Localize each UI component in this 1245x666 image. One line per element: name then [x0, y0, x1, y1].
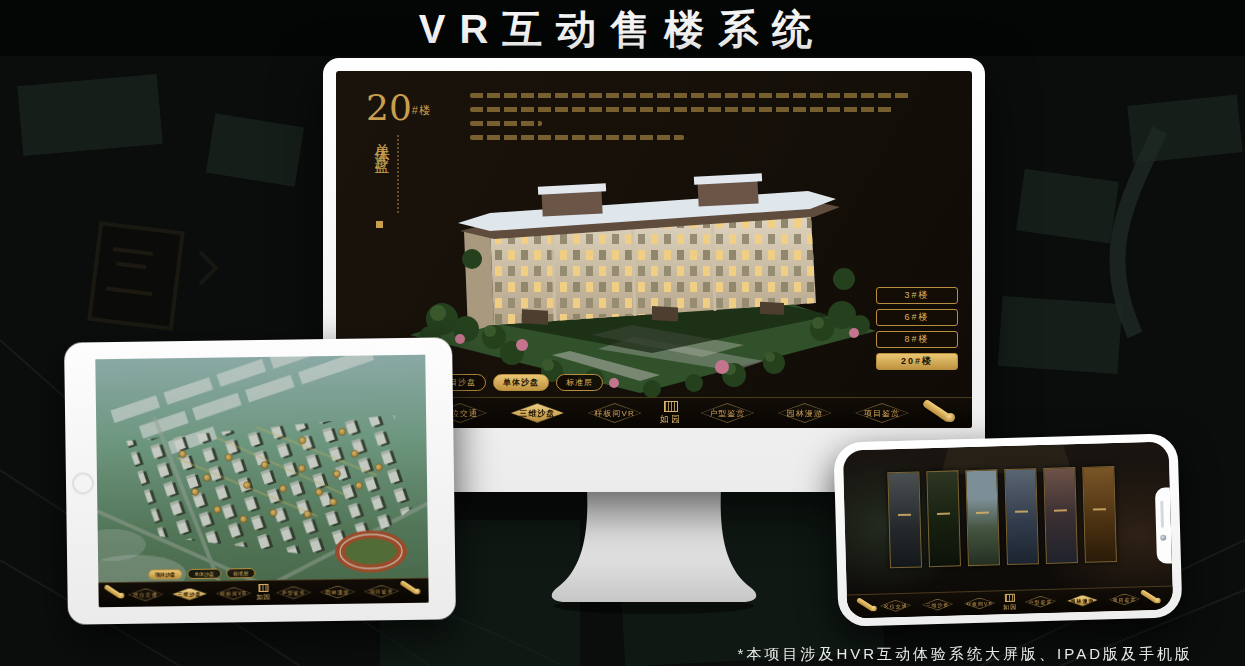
scroll-icon[interactable] [922, 396, 960, 424]
gallery-panel-display-shelf[interactable] [1082, 466, 1117, 563]
building-render [402, 135, 886, 403]
tablet-nav-bar: 区位交通 三维沙盘 样板间VR 如园 户型鉴赏 园林漫游 项目鉴赏 [98, 578, 428, 608]
building-button-20[interactable]: 20#楼 [876, 353, 958, 370]
building-button-3[interactable]: 3#楼 [876, 287, 958, 304]
brand-logo: 如园 [1003, 593, 1017, 611]
scroll-icon[interactable] [400, 578, 424, 596]
tablet-nav-location-traffic[interactable]: 区位交通 [124, 588, 166, 602]
nav-item-project-gallery[interactable]: 项目鉴赏 [850, 403, 914, 423]
phone-nav-unit-gallery[interactable]: 户型鉴赏 [1022, 595, 1059, 608]
page-title: VR互动售楼系统 [0, 2, 1245, 57]
gallery-panel-courtyard[interactable] [926, 470, 961, 567]
vertical-ornament [397, 135, 399, 213]
phone-gallery [887, 466, 1117, 568]
tablet-tab-project-sandbox[interactable]: 项目沙盘 [148, 569, 182, 579]
gallery-panel-interior-hall[interactable] [887, 471, 922, 568]
phone-nav-location-traffic[interactable]: 区位交通 [877, 599, 914, 612]
tablet-nav-project-gallery[interactable]: 项目鉴赏 [360, 585, 402, 599]
scroll-icon[interactable] [1140, 587, 1164, 605]
tablet-nav-3d-sandbox[interactable]: 三维沙盘 [168, 587, 210, 601]
nav-item-garden-roam[interactable]: 园林漫游 [773, 403, 837, 423]
tablet-tab-standard-floor[interactable]: 标准层 [226, 568, 255, 578]
poster: VR互动售楼系统 20#楼 单体沙盘 [0, 0, 1245, 666]
logo-seal-icon [1005, 593, 1015, 601]
tablet-nav-garden-roam[interactable]: 园林漫游 [316, 585, 358, 599]
tablet-screen: 项目沙盘 单体沙盘 标准层 区位交通 三维沙盘 样板间VR 如园 户型鉴赏 园林… [95, 355, 428, 608]
building-selector: 3#楼 6#楼 8#楼 20#楼 [876, 287, 958, 370]
tab-standard-floor[interactable]: 标准层 [556, 374, 603, 391]
gallery-panel-building-exterior[interactable] [1004, 468, 1039, 565]
floor-subtitle: 单体沙盘 [372, 131, 391, 151]
logo-seal-icon [664, 401, 678, 412]
camera-icon [1160, 535, 1166, 541]
tablet-nav-showroom-vr[interactable]: 样板间VR [212, 587, 254, 601]
phone-nav-garden-roam[interactable]: 园林漫游 [1064, 594, 1101, 607]
sub-tabs: 项目沙盘 单体沙盘 标准层 [430, 374, 603, 391]
phone-screen: 区位交通 三维沙盘 样板间VR 如园 户型鉴赏 园林漫游 项目鉴赏 [843, 441, 1174, 618]
speaker-icon [1160, 501, 1164, 528]
aerial-masterplan [95, 355, 428, 608]
phone-device: 区位交通 三维沙盘 样板间VR 如园 户型鉴赏 园林漫游 项目鉴赏 [833, 433, 1182, 627]
phone-nav-project-gallery[interactable]: 项目鉴赏 [1106, 593, 1143, 606]
monitor-stand [540, 489, 768, 617]
seal-icon [374, 219, 385, 230]
tablet-nav-unit-gallery[interactable]: 户型鉴赏 [272, 586, 314, 600]
phone-nav-3d-sandbox[interactable]: 三维沙盘 [919, 598, 956, 611]
brand-logo: 如园 [660, 401, 682, 426]
tablet-device: 项目沙盘 单体沙盘 标准层 区位交通 三维沙盘 样板间VR 如园 户型鉴赏 园林… [64, 337, 456, 624]
gallery-panel-landscape[interactable] [965, 469, 1000, 566]
footnote: *本项目涉及HVR互动体验系统大屏版、IPAD版及手机版 [738, 645, 1193, 664]
tab-single-sandbox[interactable]: 单体沙盘 [493, 374, 549, 391]
nav-item-3d-sandbox[interactable]: 三维沙盘 [505, 403, 569, 423]
phone-nav-bar: 区位交通 三维沙盘 样板间VR 如园 户型鉴赏 园林漫游 项目鉴赏 [847, 585, 1174, 618]
logo-seal-icon [258, 584, 268, 592]
tablet-sub-tabs: 项目沙盘 单体沙盘 标准层 [148, 568, 255, 579]
brand-logo: 如园 [256, 584, 270, 602]
building-button-6[interactable]: 6#楼 [876, 309, 958, 326]
gallery-panel-pavilion[interactable] [1043, 467, 1078, 564]
floor-number: 20 [366, 87, 412, 128]
phone-notch [1155, 487, 1172, 563]
nav-item-unit-gallery[interactable]: 户型鉴赏 [695, 403, 759, 423]
home-button[interactable] [72, 472, 94, 494]
tablet-tab-single-sandbox[interactable]: 单体沙盘 [187, 569, 221, 579]
building-button-8[interactable]: 8#楼 [876, 331, 958, 348]
phone-nav-showroom-vr[interactable]: 样板间VR [961, 597, 998, 610]
nav-item-showroom-vr[interactable]: 样板间VR [583, 403, 647, 423]
floor-suffix: #楼 [412, 104, 431, 116]
